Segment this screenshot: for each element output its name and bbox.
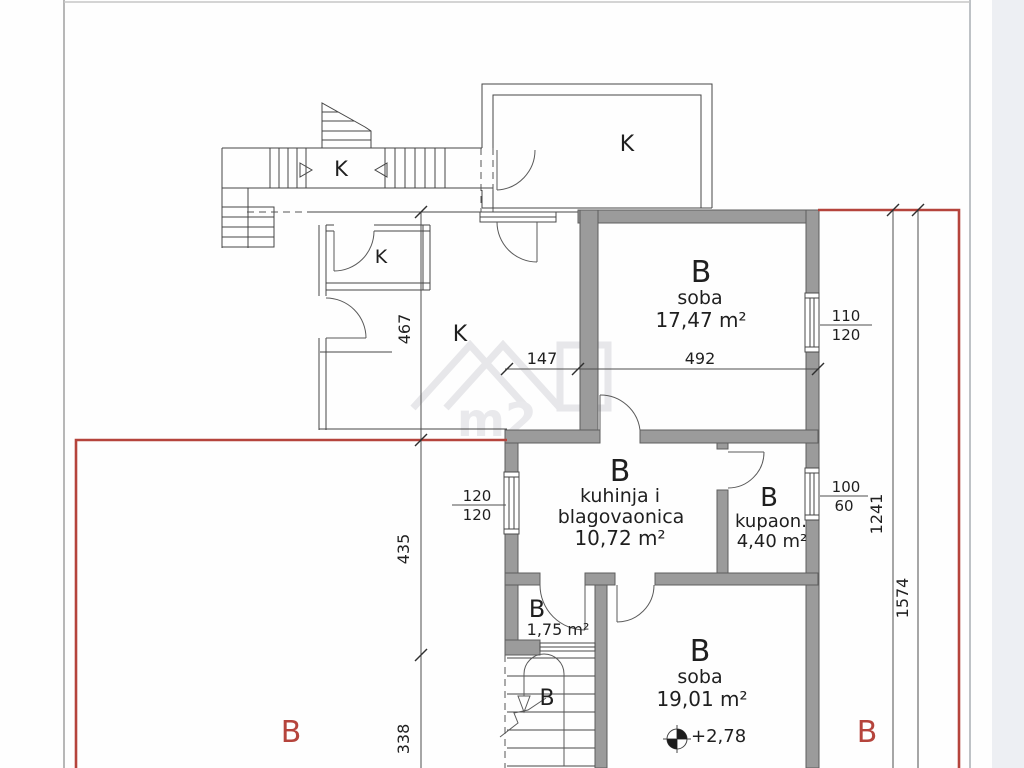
soba1-area: 17,47 m² <box>655 308 746 332</box>
label-k-main: K <box>453 322 468 347</box>
window-storage <box>540 643 595 651</box>
storage-area: 1,75 m² <box>527 620 590 639</box>
page-frame <box>64 0 1024 768</box>
soba2-letter: B <box>690 634 711 669</box>
soba1-name: soba <box>677 287 722 309</box>
room-k-top <box>482 84 712 208</box>
win-bath-h: 60 <box>834 497 853 515</box>
kitchen-area: 10,72 m² <box>574 526 665 550</box>
win-kitchen-w: 120 <box>463 487 492 505</box>
soba1-letter: B <box>691 255 712 290</box>
win-kitchen-h: 120 <box>463 506 492 524</box>
dim-1574: 1574 <box>893 578 912 619</box>
dim-467: 467 <box>395 314 414 345</box>
bath-area: 4,40 m² <box>737 531 808 552</box>
window-soba1 <box>805 293 819 352</box>
upper-staircase <box>222 103 493 248</box>
win-bath-w: 100 <box>832 478 861 496</box>
label-k-small: K <box>375 246 388 268</box>
door-bath <box>728 452 764 488</box>
soba2-area: 19,01 m² <box>656 687 747 711</box>
window-k-top <box>480 212 556 222</box>
bath-letter: B <box>760 483 778 513</box>
lower-staircase <box>500 654 595 768</box>
win-soba1-w: 110 <box>832 307 861 325</box>
elevation-marker: +2,78 <box>663 725 746 753</box>
kitchen-name-2: blagovaonica <box>558 506 685 528</box>
section-label-right: B <box>857 715 878 750</box>
kitchen-name-1: kuhinja i <box>580 485 660 507</box>
windows <box>504 293 819 651</box>
dim-435: 435 <box>394 534 413 565</box>
stair-letter: B <box>539 686 554 711</box>
dim-1241: 1241 <box>867 494 886 535</box>
win-soba1-h: 120 <box>832 326 861 344</box>
elevation-value: +2,78 <box>691 726 746 747</box>
kitchen-letter: B <box>610 454 631 489</box>
section-label-left: B <box>281 715 302 750</box>
floor-plan-drawing: m2 <box>0 0 1024 768</box>
floor-plan-page: m2 <box>0 0 1024 768</box>
door-k-top <box>497 150 535 190</box>
soba2-name: soba <box>677 666 722 688</box>
dim-338: 338 <box>394 724 413 755</box>
dim-492: 492 <box>685 349 716 368</box>
door-soba2 <box>617 585 654 622</box>
bath-name: kupaon. <box>735 511 807 532</box>
window-bath <box>805 468 819 520</box>
label-k-stair: K <box>334 157 349 181</box>
storage-letter: B <box>529 595 545 623</box>
door-k-small <box>334 231 374 271</box>
door-k-main-left <box>326 298 366 338</box>
window-kitchen <box>504 472 519 534</box>
dim-147: 147 <box>527 349 558 368</box>
door-k-main-top <box>497 222 537 262</box>
section-labels: B B <box>281 715 878 750</box>
label-k-top: K <box>620 132 635 157</box>
